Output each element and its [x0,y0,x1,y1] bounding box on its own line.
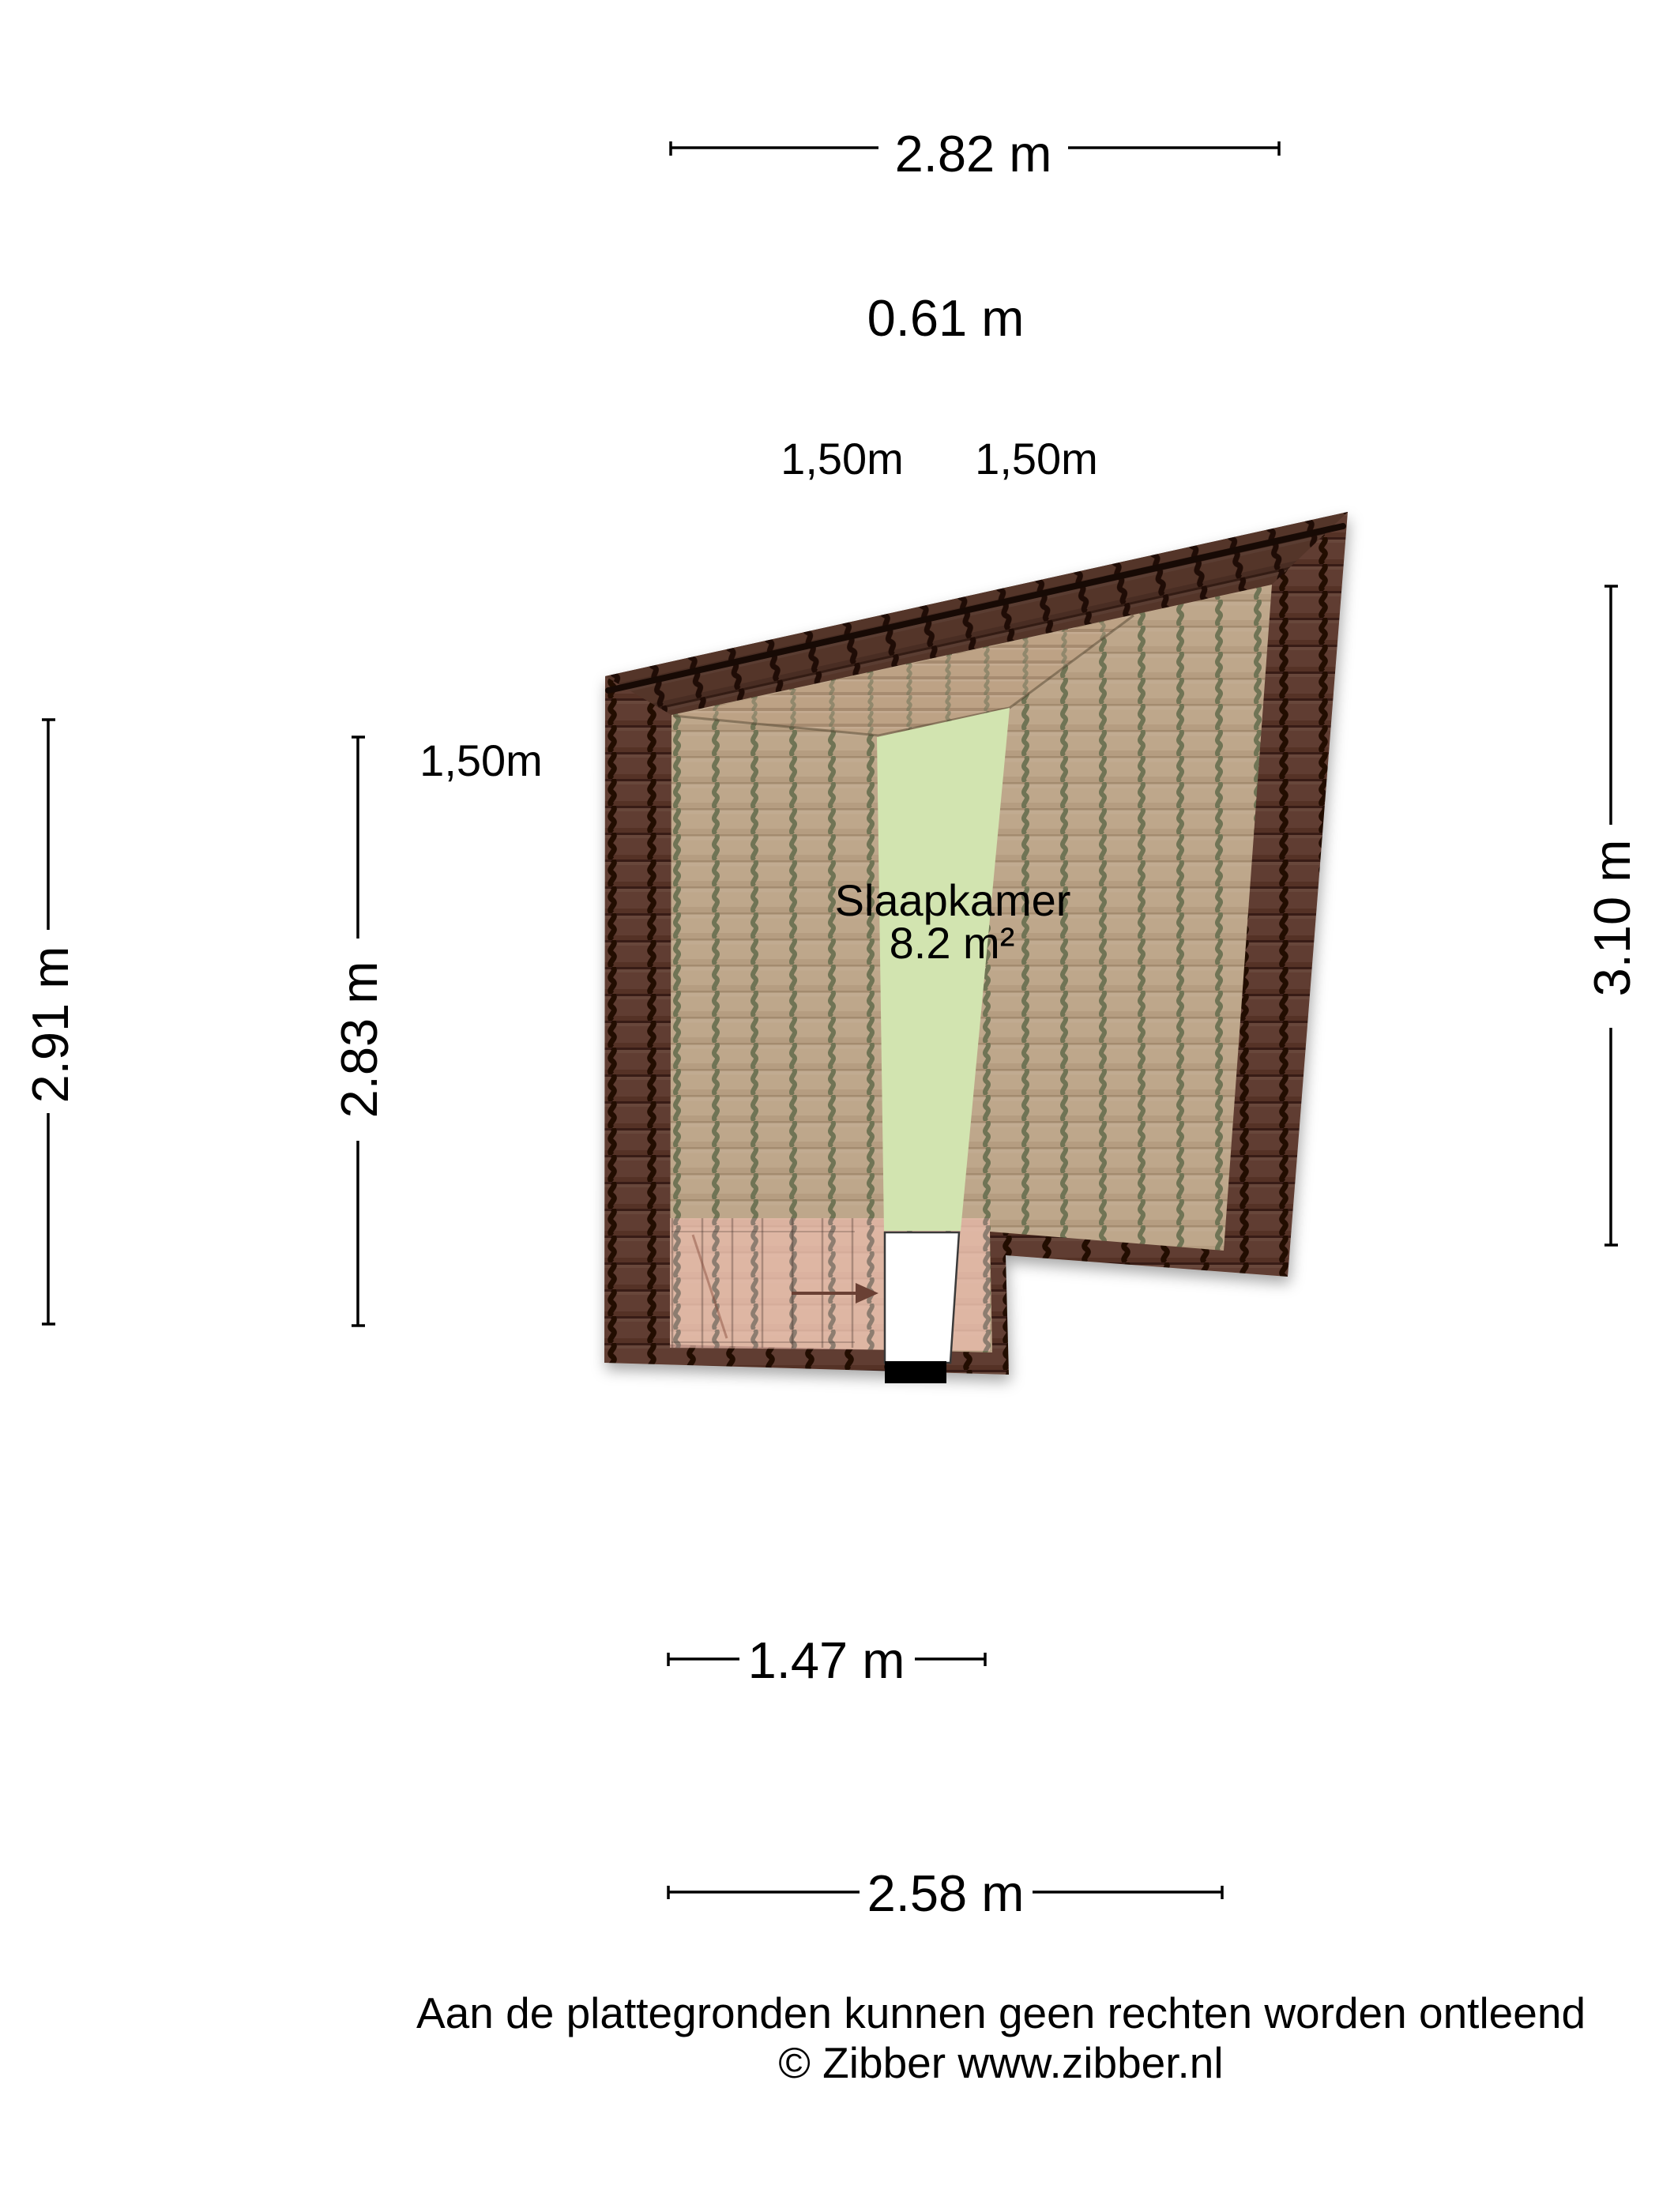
svg-text:2.82 m: 2.82 m [895,125,1052,182]
svg-text:0.61 m: 0.61 m [867,289,1025,347]
svg-text:© Zibber www.zibber.nl: © Zibber www.zibber.nl [778,2038,1223,2087]
svg-text:1,50m: 1,50m [781,434,904,483]
svg-text:3.10 m: 3.10 m [1583,840,1641,997]
svg-text:2.91 m: 2.91 m [21,946,79,1104]
svg-text:1.47 m: 1.47 m [748,1631,905,1689]
svg-text:Aan de plattegronden kunnen ge: Aan de plattegronden kunnen geen rechten… [416,1988,1586,2037]
svg-text:1,50m: 1,50m [419,735,543,785]
svg-text:2.58 m: 2.58 m [867,1864,1025,1922]
svg-text:1,50m: 1,50m [975,434,1098,483]
svg-text:2.83 m: 2.83 m [330,961,388,1119]
svg-text:8.2 m²: 8.2 m² [890,918,1015,968]
